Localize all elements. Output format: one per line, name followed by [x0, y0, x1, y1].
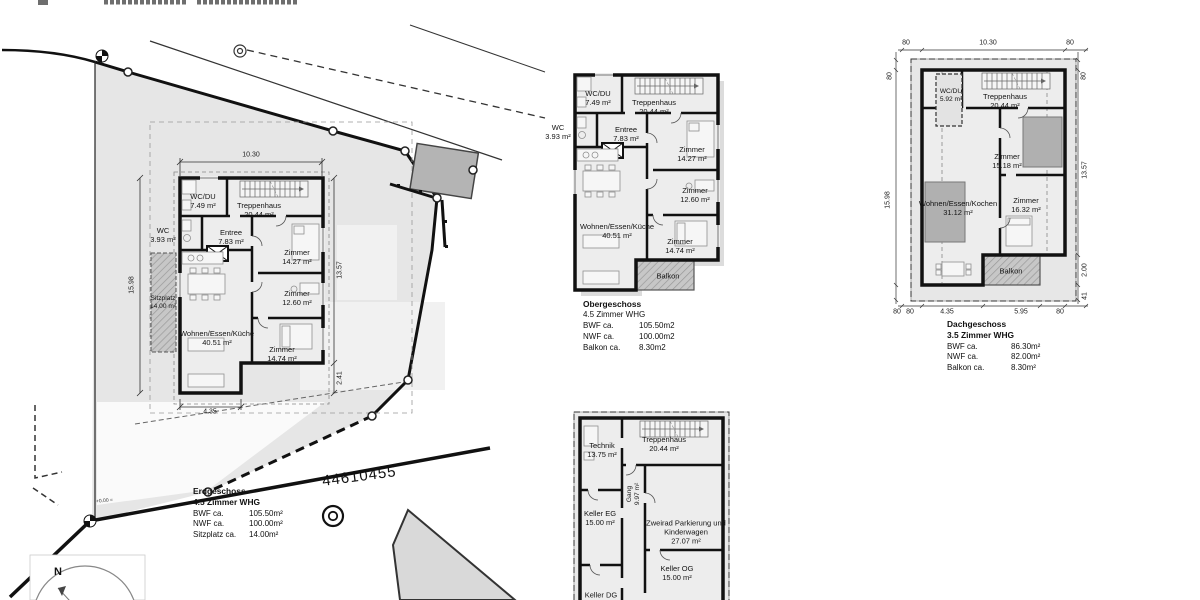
room-label-og-zimmer3: Zimmer14.74 m²: [665, 237, 695, 255]
room-name: Sitzplatz: [150, 295, 176, 303]
dim-dg-right-2: 2.00: [1082, 263, 1089, 277]
room-name: Balkon: [1000, 267, 1023, 276]
room-label-ug-keller-eg: Keller EG15.00 m²: [584, 509, 616, 527]
survey-point-icon: [96, 50, 108, 62]
room-label-og-treppenhaus: Treppenhaus20.44 m²: [632, 98, 676, 116]
room-label-eg-entree: Entree7.83 m²: [218, 228, 243, 246]
dim-dg-bottom-2: 4.35: [940, 309, 954, 316]
room-name: Entree: [218, 228, 243, 237]
room-name: WC/DU: [190, 192, 215, 201]
og-subtitle: 4.5 Zimmer WHG: [583, 310, 675, 321]
room-area: 7.83 m²: [613, 134, 638, 143]
room-area: 31.12 m²: [919, 208, 997, 217]
room-name: Zimmer: [677, 145, 707, 154]
room-name: Keller EG: [584, 509, 616, 518]
room-area: 27.07 m²: [642, 537, 730, 546]
road-point-icon: [323, 506, 343, 526]
room-label-og-entree: Entree7.83 m²: [613, 125, 638, 143]
clipped-header-text: [38, 0, 299, 5]
room-label-eg-sitzplatz: Sitzplatz14.00 m²: [150, 295, 176, 311]
room-label-dg-treppenhaus: Treppenhaus20.44 m²: [983, 92, 1027, 110]
eg-subtitle: 4.5 Zimmer WHG: [193, 497, 283, 508]
eg-title: Erdgeschoss: [193, 486, 283, 497]
room-label-eg-wc: WC3.93 m²: [150, 226, 175, 244]
room-area: 7.49 m²: [190, 201, 215, 210]
room-area: 20.44 m²: [237, 210, 281, 219]
room-area: 16.32 m²: [1011, 205, 1041, 214]
room-label-eg-treppenhaus: Treppenhaus20.44 m²: [237, 201, 281, 219]
room-area: 15.18 m²: [992, 161, 1022, 170]
eg-info-block: Erdgeschoss 4.5 Zimmer WHG BWF ca.105.50…: [193, 486, 283, 541]
dim-dg-right-1: 13.57: [1082, 161, 1089, 179]
room-label-ug-treppenhaus: Treppenhaus20.44 m²: [642, 435, 686, 453]
room-label-eg-wohnen: Wohnen/Essen/Küche40.51 m²: [180, 329, 254, 347]
room-label-dg-zimmer2: Zimmer16.32 m²: [1011, 196, 1041, 214]
eg-info-row: NWF ca.100.00m²: [193, 519, 283, 530]
dim-dg-bottom-0: 80: [893, 309, 901, 316]
dim-dg-right-3: 41: [1082, 292, 1089, 300]
room-name: Zimmer: [665, 237, 695, 246]
room-label-ug-technik: Technik13.75 m²: [587, 441, 617, 459]
room-name: Zimmer: [282, 248, 312, 257]
dim-dg-left-1: 15.98: [885, 191, 892, 209]
room-label-eg-zimmer2: Zimmer12.60 m²: [282, 289, 312, 307]
room-label-eg-zimmer1: Zimmer14.27 m²: [282, 248, 312, 266]
room-area: 13.75 m²: [587, 450, 617, 459]
dg-info-block: Dachgeschoss 3.5 Zimmer WHG BWF ca.86.30…: [947, 319, 1040, 374]
room-label-eg-wcdu: WC/DU7.49 m²: [190, 192, 215, 210]
og-info-row: BWF ca.105.50m2: [583, 321, 675, 332]
room-area: 14.74 m²: [665, 246, 695, 255]
room-area: 3.93 m²: [545, 132, 570, 141]
room-label-og-balkon: Balkon: [657, 272, 680, 281]
room-area: 3.93 m²: [150, 235, 175, 244]
room-name: Wohnen/Essen/Kochen: [919, 199, 997, 208]
room-name: Wohnen/Essen/Küche: [180, 329, 254, 338]
dim-eg-top: 10.30: [242, 152, 260, 159]
dim-eg-left: 15.98: [129, 276, 136, 294]
og-info-block: Obergeschoss 4.5 Zimmer WHG BWF ca.105.5…: [583, 299, 675, 354]
room-name: Technik: [587, 441, 617, 450]
room-label-og-zimmer2: Zimmer12.60 m²: [680, 186, 710, 204]
room-label-dg-wcdu: WC/DU5.92 m²: [940, 88, 962, 104]
dim-dg-bottom-3: 5.95: [1014, 309, 1028, 316]
og-info-row: NWF ca.100.00m2: [583, 332, 675, 343]
dg-info-row: Balkon ca.8.30m²: [947, 363, 1040, 374]
room-area: 14.27 m²: [282, 257, 312, 266]
room-name: Zimmer: [992, 152, 1022, 161]
dim-dg-bottom-1: 80: [906, 309, 914, 316]
room-area: 40.51 m²: [180, 338, 254, 347]
room-name: Zimmer: [267, 345, 297, 354]
room-area: 20.44 m²: [632, 107, 676, 116]
room-area: 14.27 m²: [677, 154, 707, 163]
room-label-ug-keller-dg: Keller DG: [585, 591, 618, 600]
room-label-og-wcdu: WC/DU7.49 m²: [585, 89, 610, 107]
room-area: 15.00 m²: [661, 573, 694, 582]
dim-dg-left-0: 80: [887, 72, 894, 80]
room-name: WC/DU: [585, 89, 610, 98]
room-area: 5.92 m²: [940, 96, 962, 104]
room-area: 15.00 m²: [584, 518, 616, 527]
room-area: 7.83 m²: [218, 237, 243, 246]
room-label-ug-keller-og: Keller OG15.00 m²: [661, 564, 694, 582]
eg-info-row: BWF ca.105.50m²: [193, 509, 283, 520]
dg-info-row: BWF ca.86.30m²: [947, 342, 1040, 353]
dim-dg-top-2: 80: [1066, 40, 1074, 47]
room-name: Treppenhaus: [642, 435, 686, 444]
room-label-ug-gang: Gang9.97 m²: [626, 483, 642, 505]
dim-dg-bottom-4: 80: [1056, 309, 1064, 316]
room-label-dg-wohnen: Wohnen/Essen/Kochen31.12 m²: [919, 199, 997, 217]
room-area: 9.97 m²: [634, 483, 642, 505]
room-name: Zimmer: [680, 186, 710, 195]
room-name: Zimmer: [1011, 196, 1041, 205]
north-label: N: [54, 566, 62, 578]
room-label-ug-zweirad: Zweirad Parkierung und Kinderwagen27.07 …: [642, 519, 730, 546]
room-name: Balkon: [657, 272, 680, 281]
floorplan-sheet: WC/DU7.49 m² Treppenhaus20.44 m² WC3.93 …: [0, 0, 1200, 600]
room-name: Gang: [626, 483, 634, 505]
room-name: WC: [545, 123, 570, 132]
og-title: Obergeschoss: [583, 299, 675, 310]
room-area: 7.49 m²: [585, 98, 610, 107]
og-info-row: Balkon ca.8.30m2: [583, 343, 675, 354]
room-name: WC: [150, 226, 175, 235]
room-name: Treppenhaus: [983, 92, 1027, 101]
dg-plan: [894, 48, 1088, 308]
eg-info-row: Sitzplatz ca.14.00m²: [193, 530, 283, 541]
dim-eg-bottom: 4.35: [203, 409, 217, 416]
room-area: 20.44 m²: [983, 101, 1027, 110]
room-area: 12.60 m²: [680, 195, 710, 204]
room-area: 14.74 m²: [267, 354, 297, 363]
survey-point-icon: [84, 515, 96, 527]
room-label-dg-zimmer1: Zimmer15.18 m²: [992, 152, 1022, 170]
dim-dg-top-0: 80: [902, 40, 910, 47]
compass-icon: [30, 555, 145, 600]
room-label-og-wc: WC3.93 m²: [545, 123, 570, 141]
room-name: Zimmer: [282, 289, 312, 298]
room-name: Keller DG: [585, 591, 618, 600]
dim-dg-right-0: 80: [1081, 72, 1088, 80]
room-label-og-zimmer1: Zimmer14.27 m²: [677, 145, 707, 163]
room-area: 40.51 m²: [580, 231, 654, 240]
room-name: Keller OG: [661, 564, 694, 573]
room-label-dg-balkon: Balkon: [1000, 267, 1023, 276]
dim-eg-right: 13.57: [337, 261, 344, 279]
dim-dg-top-1: 10.30: [979, 40, 997, 47]
room-name: Wohnen/Essen/Küche: [580, 222, 654, 231]
room-name: Entree: [613, 125, 638, 134]
room-area: 14.00 m²: [150, 303, 176, 311]
room-area: 20.44 m²: [642, 444, 686, 453]
dim-eg-notch: 2.41: [337, 371, 344, 385]
room-name: Zweirad Parkierung und Kinderwagen: [642, 519, 730, 537]
room-area: 12.60 m²: [282, 298, 312, 307]
dg-title: Dachgeschoss: [947, 319, 1040, 330]
dg-info-row: NWF ca.82.00m²: [947, 352, 1040, 363]
dg-subtitle: 3.5 Zimmer WHG: [947, 330, 1040, 341]
room-name: Treppenhaus: [237, 201, 281, 210]
room-label-eg-zimmer3: Zimmer14.74 m²: [267, 345, 297, 363]
room-name: WC/DU: [940, 88, 962, 96]
room-name: Treppenhaus: [632, 98, 676, 107]
room-label-og-wohnen: Wohnen/Essen/Küche40.51 m²: [580, 222, 654, 240]
